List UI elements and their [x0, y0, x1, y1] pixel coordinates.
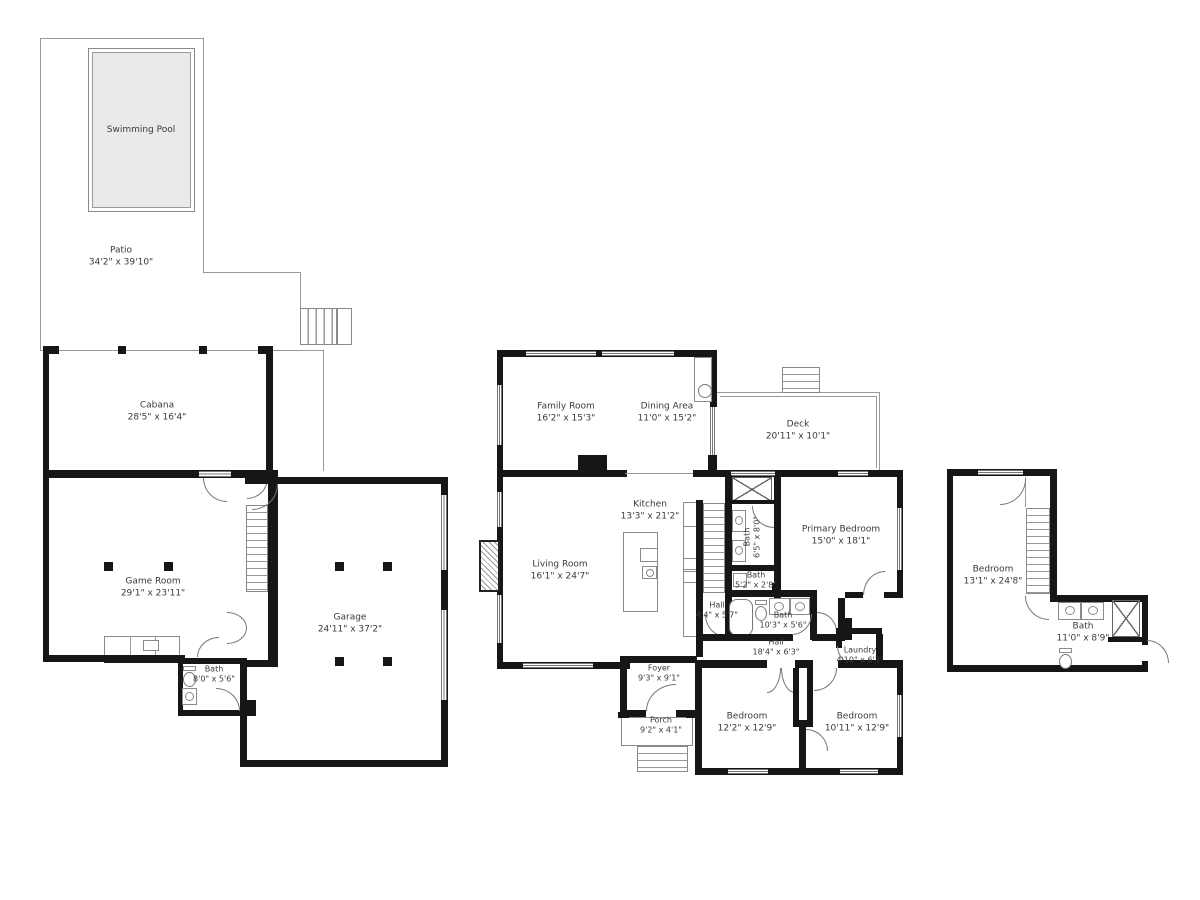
room-name: Bedroom [718, 711, 777, 723]
room-label-deck: Deck20'11" x 10'1" [766, 419, 830, 442]
room-dims: 5'2" x 2'8" [735, 581, 777, 591]
window [897, 695, 902, 737]
door-arc [646, 684, 676, 711]
room-label-hall-main: Hall18'4" x 6'3" [752, 638, 799, 659]
room-dims: 13'3" x 21'2" [621, 511, 680, 523]
wall [43, 470, 273, 478]
wall [686, 712, 697, 718]
room-label-dining-area: Dining Area11'0" x 15'2" [638, 401, 697, 424]
opening-line [625, 473, 693, 474]
room-name: Family Room [537, 401, 596, 413]
counter [104, 636, 180, 656]
shower [732, 477, 772, 502]
window [602, 351, 674, 356]
window [897, 508, 902, 570]
sink [646, 569, 654, 577]
room-name: Kitchen [621, 499, 680, 511]
staircase [703, 503, 725, 593]
wall [245, 760, 448, 767]
window [199, 471, 231, 477]
wall [245, 477, 448, 484]
deck-stairs [782, 367, 820, 393]
room-name: Living Room [531, 559, 590, 571]
door-arc [216, 688, 240, 711]
wall [793, 720, 813, 727]
room-dims: 15'0" x 18'1" [802, 536, 880, 548]
door-arc [1147, 640, 1169, 663]
window [441, 610, 447, 700]
room-name: Bath [735, 571, 777, 581]
room-label-family-room: Family Room16'2" x 15'3" [537, 401, 596, 424]
wall [51, 346, 59, 354]
wall [732, 500, 778, 504]
door-arc [817, 612, 837, 632]
room-name: Patio [89, 245, 153, 257]
room-dims: 4'10" x 6'3" [836, 656, 883, 666]
closet-wall [793, 668, 799, 724]
wall [43, 346, 49, 477]
sink [143, 640, 159, 651]
room-dims: 6'5" x 8'0" [753, 516, 763, 558]
column [383, 657, 392, 666]
patio-outline [40, 38, 204, 39]
room-label-kitchen: Kitchen13'3" x 21'2" [621, 499, 680, 522]
door-arc [1025, 596, 1049, 620]
room-name: Garage [318, 612, 382, 624]
room-label-cabana: Cabana28'5" x 16'4" [128, 400, 187, 423]
wall [497, 470, 581, 477]
door-arc [227, 612, 247, 628]
room-label-hall-small: Hall4'4" x 5'7" [696, 601, 738, 622]
door-arc [767, 668, 781, 693]
room-label-foyer: Foyer9'3" x 9'1" [638, 664, 680, 685]
door-arc [1000, 479, 1026, 505]
room-label-bedroom-right: Bedroom13'1" x 24'8" [964, 564, 1023, 587]
wall [118, 346, 126, 354]
wall [1050, 469, 1057, 597]
room-dims: 8'0" x 5'6" [193, 675, 235, 685]
window [441, 495, 447, 570]
sink [1065, 606, 1075, 615]
room-label-laundry: Laundry4'10" x 6'3" [836, 646, 883, 667]
window [978, 470, 1023, 475]
patio-stairs [300, 308, 337, 345]
wall [947, 665, 1148, 672]
room-name: Bath [1057, 621, 1110, 633]
room-label-game-room: Game Room29'1" x 23'11" [121, 576, 185, 599]
floor-plan: Swimming PoolPatio34'2" x 39'10"Cabana28… [0, 0, 1200, 900]
room-dims: 24'11" x 37'2" [318, 624, 382, 636]
window [728, 769, 768, 774]
room-dims: 13'1" x 24'8" [964, 576, 1023, 588]
staircase [1026, 508, 1050, 594]
wall [240, 667, 247, 767]
sink [1088, 606, 1098, 615]
room-name: Laundry [836, 646, 883, 656]
room-dims: 16'2" x 15'3" [537, 413, 596, 425]
room-label-bath-upper: Bath6'5" x 8'0" [743, 516, 764, 558]
window [710, 407, 715, 455]
door-arc [863, 571, 885, 595]
room-dims: 34'2" x 39'10" [89, 257, 153, 269]
room-name: Cabana [128, 400, 187, 412]
wall [695, 662, 702, 775]
wall [693, 470, 719, 477]
room-name: Bath [759, 611, 806, 621]
room-dims: 9'2" x 4'1" [640, 726, 682, 736]
patio-outline [300, 272, 301, 309]
wall [1108, 637, 1144, 642]
window [497, 492, 502, 527]
door-arc [197, 637, 219, 657]
toilet-tank [755, 600, 767, 605]
room-name: Dining Area [638, 401, 697, 413]
window [497, 385, 502, 445]
column [383, 562, 392, 571]
column [104, 562, 113, 571]
wall [43, 478, 49, 662]
deck-outline [879, 392, 880, 470]
toilet-bowl [1059, 654, 1072, 669]
shower [1112, 600, 1140, 637]
room-name: Bedroom [825, 711, 889, 723]
room-name: Bath [743, 516, 753, 558]
toilet-tank [1059, 648, 1072, 653]
column [164, 562, 173, 571]
window [526, 351, 596, 356]
room-label-bath-main: Bath10'3" x 5'6" [759, 611, 806, 632]
window [523, 663, 593, 668]
room-dims: 11'0" x 15'2" [638, 413, 697, 425]
sink [185, 692, 194, 701]
wall [240, 660, 278, 667]
room-name: Bedroom [964, 564, 1023, 576]
chimney [479, 540, 500, 592]
room-name: Deck [766, 419, 830, 431]
wall [947, 469, 953, 672]
staircase [246, 505, 268, 592]
door-arc [203, 478, 227, 502]
room-dims: 12'2" x 12'9" [718, 723, 777, 735]
patio-outline [203, 272, 301, 273]
room-dims: 28'5" x 16'4" [128, 412, 187, 424]
room-name: Hall [752, 638, 799, 648]
room-name: Game Room [121, 576, 185, 588]
wall [178, 658, 247, 664]
deck-outline [876, 396, 877, 468]
room-label-bath-cabana: Bath8'0" x 5'6" [193, 665, 235, 686]
room-label-bath-powder: Bath5'2" x 2'8" [735, 571, 777, 592]
door-arc [814, 668, 837, 691]
door-arc [227, 628, 247, 644]
room-dims: 4'4" x 5'7" [696, 611, 738, 621]
closet-wall [807, 668, 813, 724]
wall [697, 660, 767, 668]
window [731, 471, 775, 476]
wall [795, 660, 813, 668]
wall [605, 470, 627, 477]
wall [845, 592, 863, 598]
wall [618, 712, 629, 718]
column [335, 562, 344, 571]
wall [266, 346, 273, 477]
room-label-bedroom-2: Bedroom10'11" x 12'9" [825, 711, 889, 734]
porch-stairs [637, 746, 688, 772]
counter-divider [130, 636, 131, 656]
column [335, 657, 344, 666]
patio-outline [41, 350, 323, 351]
water-heater [698, 384, 712, 398]
room-dims: 10'3" x 5'6" [759, 621, 806, 631]
room-name: Porch [640, 716, 682, 726]
room-dims: 16'1" x 24'7" [531, 571, 590, 583]
wall [258, 346, 266, 354]
room-dims: 9'3" x 9'1" [638, 674, 680, 684]
room-dims: 29'1" x 23'11" [121, 588, 185, 600]
patio-outline [40, 38, 41, 351]
room-label-bedroom-1: Bedroom12'2" x 12'9" [718, 711, 777, 734]
room-name: Hall [696, 601, 738, 611]
wall [199, 346, 207, 354]
room-name: Swimming Pool [107, 125, 176, 137]
window [838, 471, 868, 476]
room-dims: 18'4" x 6'3" [752, 648, 799, 658]
room-name: Primary Bedroom [802, 524, 880, 536]
wall [620, 663, 627, 717]
room-dims: 10'11" x 12'9" [825, 723, 889, 735]
deck-outline [720, 396, 877, 397]
stair-landing [337, 308, 352, 345]
wall [884, 592, 903, 598]
wall [620, 656, 697, 663]
room-label-garage: Garage24'11" x 37'2" [318, 612, 382, 635]
room-label-living-room: Living Room16'1" x 24'7" [531, 559, 590, 582]
window [840, 769, 878, 774]
room-label-bath-right: Bath11'0" x 8'9" [1057, 621, 1110, 644]
room-name: Foyer [638, 664, 680, 674]
room-label-porch: Porch9'2" x 4'1" [640, 716, 682, 737]
patio-outline [323, 350, 324, 471]
fireplace [578, 455, 607, 477]
wall [104, 655, 180, 663]
room-label-patio: Patio34'2" x 39'10" [89, 245, 153, 268]
island-appliance [640, 548, 658, 562]
room-dims: 11'0" x 8'9" [1057, 633, 1110, 645]
room-label-swimming-pool: Swimming Pool [107, 125, 176, 137]
patio-outline [203, 38, 204, 273]
window [497, 595, 502, 643]
room-label-primary-bedroom: Primary Bedroom15'0" x 18'1" [802, 524, 880, 547]
room-name: Bath [193, 665, 235, 675]
room-dims: 20'11" x 10'1" [766, 431, 830, 443]
